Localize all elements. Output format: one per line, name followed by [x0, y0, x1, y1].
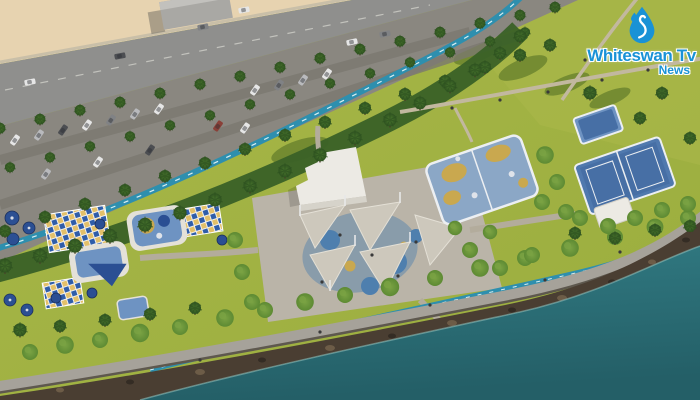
small-blue-pad	[117, 296, 150, 320]
checker-shade-mat	[181, 203, 223, 237]
news-still-aerial-park-render: Whiteswan Tv News	[0, 0, 700, 400]
aerial-scene	[0, 0, 700, 400]
